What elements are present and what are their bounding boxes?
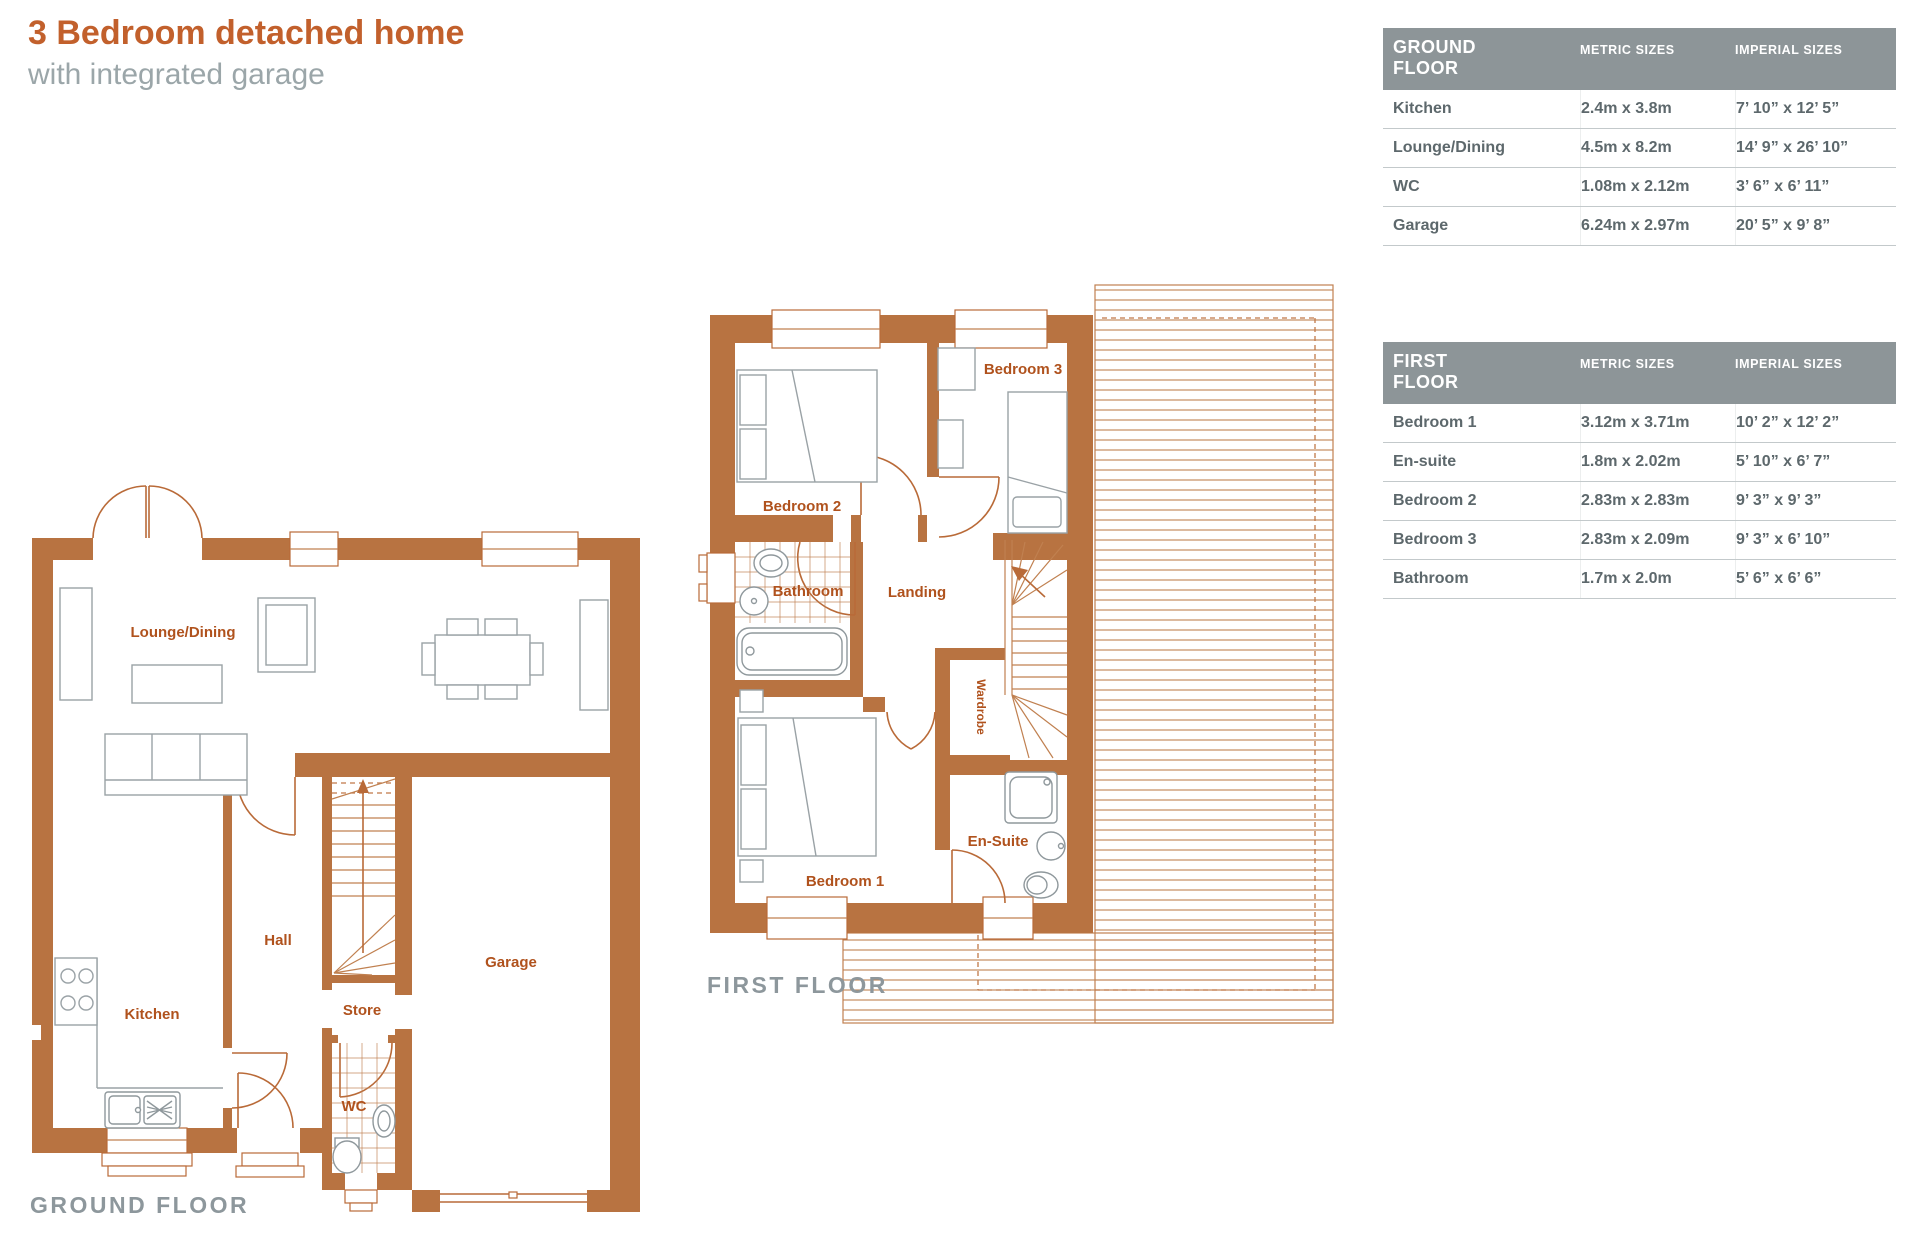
label-lounge-dining: Lounge/Dining (131, 624, 236, 641)
label-bedroom3: Bedroom 3 (984, 361, 1062, 378)
page-title: 3 Bedroom detached home (28, 14, 464, 53)
imperial-size: 9’ 3” x 6’ 10” (1735, 521, 1896, 559)
metric-size: 2.4m x 3.8m (1580, 90, 1735, 128)
ground-floor-size-table: GROUND FLOOR METRIC SIZES IMPERIAL SIZES… (1383, 28, 1896, 246)
porch-steps (236, 1153, 304, 1177)
table-row: En-suite 1.8m x 2.02m 5’ 10” x 6’ 7” (1383, 443, 1896, 482)
bedroom1-bed (738, 690, 876, 882)
metric-size: 1.7m x 2.0m (1580, 560, 1735, 598)
room-name: Garage (1383, 207, 1580, 245)
imperial-size: 10’ 2” x 12’ 2” (1735, 404, 1896, 442)
label-bedroom2: Bedroom 2 (763, 498, 841, 515)
room-name: Bedroom 3 (1383, 521, 1580, 559)
label-kitchen: Kitchen (124, 1006, 179, 1023)
metric-size: 1.8m x 2.02m (1580, 443, 1735, 481)
imperial-size: 5’ 10” x 6’ 7” (1735, 443, 1896, 481)
ground-floor-stairs (332, 779, 395, 975)
label-landing: Landing (888, 584, 946, 601)
first-floor-plan: Bedroom 2 Bedroom 3 Bathroom Landing War… (695, 275, 1345, 1035)
ground-floor-doors (232, 777, 392, 1128)
room-name: En-suite (1383, 443, 1580, 481)
ground-floor-plan: Lounge/Dining Hall Kitchen Store WC Gara… (20, 485, 670, 1241)
table-row: WC 1.08m x 2.12m 3’ 6” x 6’ 11” (1383, 168, 1896, 207)
label-bedroom1: Bedroom 1 (806, 873, 884, 890)
table-row: Bathroom 1.7m x 2.0m 5’ 6” x 6’ 6” (1383, 560, 1896, 599)
metric-sizes-column-header: METRIC SIZES (1580, 28, 1735, 57)
label-store: Store (343, 1002, 381, 1019)
label-wc: WC (342, 1098, 367, 1115)
patio-doors (93, 486, 202, 538)
label-hall: Hall (264, 932, 292, 949)
table-row: Lounge/Dining 4.5m x 8.2m 14’ 9” x 26’ 1… (1383, 129, 1896, 168)
table-row: Bedroom 1 3.12m x 3.71m 10’ 2” x 12’ 2” (1383, 404, 1896, 443)
label-garage: Garage (485, 954, 537, 971)
room-name: WC (1383, 168, 1580, 206)
room-name: Lounge/Dining (1383, 129, 1580, 167)
room-name: Bedroom 1 (1383, 404, 1580, 442)
page-subtitle: with integrated garage (28, 58, 325, 92)
first-floor-stairs (1005, 540, 1067, 758)
bathroom-fixtures (735, 542, 850, 675)
imperial-sizes-column-header: IMPERIAL SIZES (1735, 28, 1896, 57)
table-row: Kitchen 2.4m x 3.8m 7’ 10” x 12’ 5” (1383, 90, 1896, 129)
kitchen-fittings (55, 958, 223, 1128)
first-table-header: FIRST FLOOR METRIC SIZES IMPERIAL SIZES (1383, 342, 1896, 404)
label-ensuite: En-Suite (968, 833, 1029, 850)
metric-size: 6.24m x 2.97m (1580, 207, 1735, 245)
table-row: Garage 6.24m x 2.97m 20’ 5” x 9’ 8” (1383, 207, 1896, 246)
room-name: Bathroom (1383, 560, 1580, 598)
room-name: Bedroom 2 (1383, 482, 1580, 520)
label-bathroom: Bathroom (773, 583, 844, 600)
ground-table-title: GROUND FLOOR (1383, 28, 1503, 79)
first-floor-caption: FIRST FLOOR (707, 972, 888, 998)
ground-table-header: GROUND FLOOR METRIC SIZES IMPERIAL SIZES (1383, 28, 1896, 90)
metric-size: 4.5m x 8.2m (1580, 129, 1735, 167)
room-name: Kitchen (1383, 90, 1580, 128)
metric-size: 2.83m x 2.83m (1580, 482, 1735, 520)
table-row: Bedroom 3 2.83m x 2.09m 9’ 3” x 6’ 10” (1383, 521, 1896, 560)
first-floor-openings (833, 515, 918, 542)
imperial-size: 9’ 3” x 9’ 3” (1735, 482, 1896, 520)
metric-size: 3.12m x 3.71m (1580, 404, 1735, 442)
ground-floor-caption: GROUND FLOOR (30, 1192, 249, 1218)
imperial-size: 20’ 5” x 9’ 8” (1735, 207, 1896, 245)
metric-size: 1.08m x 2.12m (1580, 168, 1735, 206)
metric-size: 2.83m x 2.09m (1580, 521, 1735, 559)
first-table-title: FIRST FLOOR (1383, 342, 1503, 393)
metric-sizes-column-header: METRIC SIZES (1580, 342, 1735, 371)
table-row: Bedroom 2 2.83m x 2.83m 9’ 3” x 9’ 3” (1383, 482, 1896, 521)
bedroom2-bed (737, 370, 877, 482)
imperial-size: 5’ 6” x 6’ 6” (1735, 560, 1896, 598)
imperial-size: 14’ 9” x 26’ 10” (1735, 129, 1896, 167)
imperial-size: 3’ 6” x 6’ 11” (1735, 168, 1896, 206)
imperial-sizes-column-header: IMPERIAL SIZES (1735, 342, 1896, 371)
first-floor-size-table: FIRST FLOOR METRIC SIZES IMPERIAL SIZES … (1383, 342, 1896, 599)
imperial-size: 7’ 10” x 12’ 5” (1735, 90, 1896, 128)
label-wardrobe: Wardrobe (974, 679, 988, 735)
dining-table-and-chairs (422, 619, 543, 699)
